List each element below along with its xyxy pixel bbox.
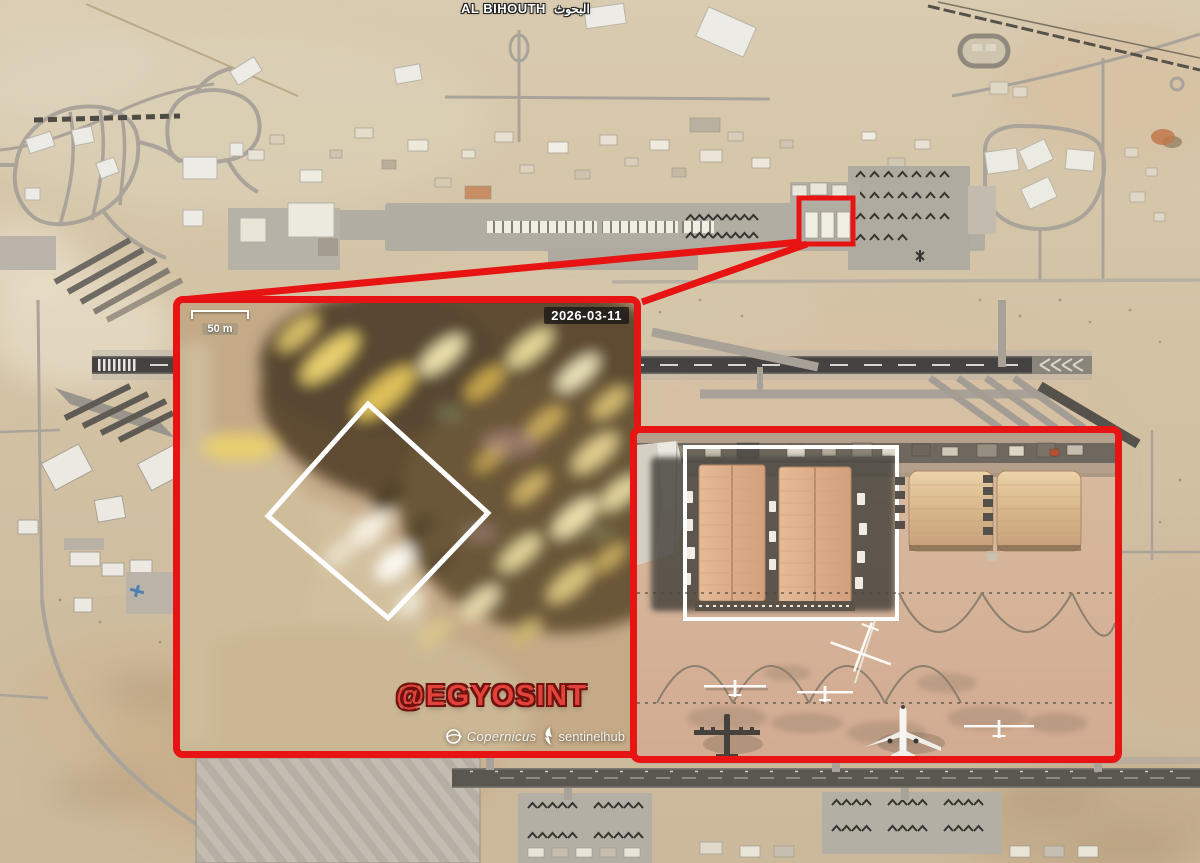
scale-bar-bracket xyxy=(191,310,249,319)
clamshell-hangar-a xyxy=(699,465,765,601)
dome-shelter-a xyxy=(909,471,993,551)
scale-bar: 50 m xyxy=(191,310,249,337)
place-label: AL BIHOUTH البحوث xyxy=(461,1,590,16)
place-label-latin: AL BIHOUTH xyxy=(461,1,546,16)
sentinelhub-logo-icon xyxy=(542,727,554,745)
credits: Copernicus sentinelhub xyxy=(445,727,625,745)
clamshell-hangar-b xyxy=(779,467,851,603)
place-label-arabic: البحوث xyxy=(554,2,590,16)
right-inset-image xyxy=(637,433,1115,756)
copernicus-label: Copernicus xyxy=(467,729,537,744)
dome-shelter-b xyxy=(997,471,1081,551)
sentinelhub-label: sentinelhub xyxy=(559,729,626,744)
date-chip: 2026-03-11 xyxy=(544,307,629,324)
scale-bar-label: 50 m xyxy=(202,323,237,335)
watermark: @EGYOSINT xyxy=(396,680,588,713)
right-zoom-inset xyxy=(630,426,1122,763)
annotated-satellite-image: AL BIHOUTH البحوث xyxy=(0,0,1200,863)
left-zoom-inset: 50 m 2026-03-11 @EGYOSINT Copernicus sen… xyxy=(173,296,641,758)
copernicus-logo-icon xyxy=(445,728,462,745)
